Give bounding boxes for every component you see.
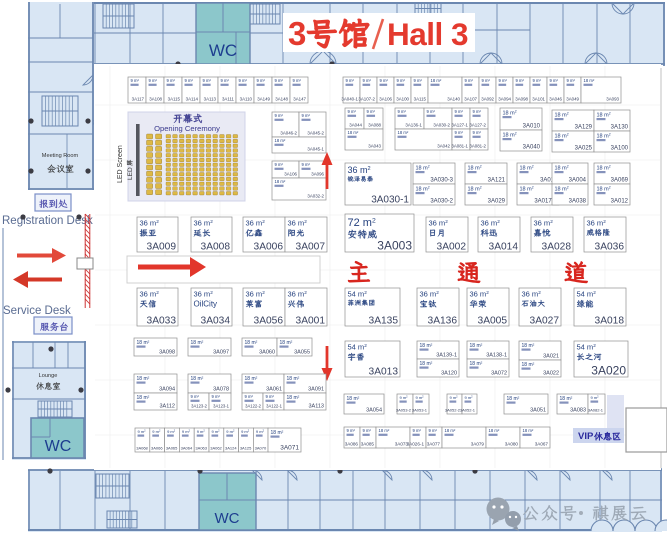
svg-text:3A008: 3A008 (201, 242, 231, 253)
svg-text:3A100: 3A100 (611, 146, 629, 152)
svg-text:3A136: 3A136 (428, 316, 458, 327)
svg-text:18 m2: 18 m2 (555, 112, 569, 119)
svg-text:3A038: 3A038 (569, 199, 587, 205)
svg-text:3A083: 3A083 (570, 408, 586, 414)
svg-text:3A113: 3A113 (204, 97, 217, 102)
svg-text:3A112: 3A112 (160, 404, 176, 410)
svg-text:3A082-1: 3A082-1 (588, 408, 604, 413)
svg-text:3A003: 3A003 (377, 239, 412, 253)
svg-text:3A028: 3A028 (542, 242, 572, 253)
svg-text:3A078: 3A078 (213, 387, 229, 393)
svg-text:3A071: 3A071 (280, 445, 299, 452)
svg-text:3A060: 3A060 (259, 350, 275, 356)
svg-text:3A149: 3A149 (257, 97, 270, 102)
svg-text:3A113: 3A113 (309, 404, 325, 410)
svg-text:3A081-2: 3A081-2 (469, 144, 486, 149)
svg-text:3A098: 3A098 (159, 350, 175, 356)
svg-text:3A098: 3A098 (515, 97, 528, 102)
svg-text:3A081-1: 3A081-1 (451, 144, 468, 149)
svg-text:3A032-2: 3A032-2 (307, 194, 324, 199)
svg-text:18 m2: 18 m2 (503, 110, 517, 117)
svg-text:3A040: 3A040 (523, 145, 541, 151)
svg-text:3A043: 3A043 (368, 144, 381, 149)
svg-text:3A033: 3A033 (147, 316, 177, 327)
svg-text:3A088: 3A088 (368, 123, 381, 128)
svg-text:3A053-1: 3A053-1 (412, 408, 428, 413)
svg-text:3A018: 3A018 (595, 316, 625, 327)
svg-text:3A106: 3A106 (284, 172, 297, 177)
svg-text:3A002: 3A002 (437, 242, 467, 253)
svg-text:3A147: 3A147 (293, 97, 306, 102)
svg-text:3A110: 3A110 (240, 97, 253, 102)
svg-text:18 m2: 18 m2 (597, 133, 611, 140)
svg-text:3A030-2: 3A030-2 (430, 199, 453, 205)
svg-text:3A080: 3A080 (505, 442, 519, 447)
svg-text:3A063: 3A063 (195, 446, 207, 451)
svg-text:3A101: 3A101 (532, 97, 545, 102)
svg-text:3A021: 3A021 (543, 354, 559, 360)
svg-text:3A124: 3A124 (225, 446, 237, 451)
svg-text:3A125: 3A125 (240, 446, 252, 451)
svg-text:18 m2: 18 m2 (555, 133, 569, 140)
svg-text:18 m2: 18 m2 (503, 132, 517, 139)
svg-text:3A014: 3A014 (489, 242, 519, 253)
svg-text:3A052-1: 3A052-1 (460, 408, 476, 413)
svg-text:3A072: 3A072 (491, 371, 507, 377)
svg-text:3A108: 3A108 (149, 97, 162, 102)
svg-text:3A034: 3A034 (201, 316, 231, 327)
svg-text:3A136-1: 3A136-1 (405, 123, 422, 128)
svg-text:3A054: 3A054 (366, 408, 382, 414)
svg-text:3A004: 3A004 (569, 178, 587, 184)
svg-text:3: 3 (288, 15, 306, 52)
svg-text:3A067: 3A067 (535, 442, 549, 447)
svg-text:3A045-2: 3A045-2 (307, 131, 324, 136)
svg-text:3A053-2: 3A053-2 (396, 408, 412, 413)
svg-text:18 m2: 18 m2 (416, 165, 430, 172)
svg-text:Hall 3: Hall 3 (387, 16, 468, 52)
svg-text:3A046: 3A046 (549, 97, 562, 102)
svg-text:3A064: 3A064 (181, 446, 193, 451)
svg-text:72 m2: 72 m2 (348, 217, 376, 229)
svg-text:3A013: 3A013 (369, 367, 399, 378)
svg-text:3A006: 3A006 (254, 242, 284, 253)
svg-text:3A029: 3A029 (488, 199, 506, 205)
svg-text:3A005: 3A005 (478, 316, 508, 327)
svg-text:3A122-1: 3A122-1 (266, 404, 283, 409)
svg-text:3A130: 3A130 (611, 125, 629, 131)
svg-text:LED: LED (127, 167, 134, 180)
svg-text:3A096: 3A096 (311, 172, 324, 177)
svg-text:OilCity: OilCity (194, 300, 218, 309)
svg-text:3A121: 3A121 (488, 178, 506, 184)
svg-text:3A100: 3A100 (396, 97, 409, 102)
svg-text:18 m2: 18 m2 (555, 186, 569, 193)
svg-text:3A107-2: 3A107-2 (358, 97, 375, 102)
svg-text:18 m2: 18 m2 (555, 165, 569, 172)
svg-text:18 m2: 18 m2 (520, 186, 534, 193)
svg-text:36 m2: 36 m2 (348, 165, 371, 175)
svg-text:3A114: 3A114 (186, 97, 199, 102)
svg-text:3A120: 3A120 (441, 371, 457, 377)
svg-text:3A127-2: 3A127-2 (469, 123, 486, 128)
svg-text:3A046-2: 3A046-2 (280, 131, 297, 136)
svg-text:3A135: 3A135 (369, 316, 399, 327)
svg-text:3A111: 3A111 (222, 97, 235, 102)
svg-text:3A040-1: 3A040-1 (341, 97, 358, 102)
svg-text:3A065: 3A065 (166, 446, 178, 451)
svg-text:3A123-1: 3A123-1 (213, 404, 230, 409)
svg-text:18 m2: 18 m2 (468, 165, 482, 172)
svg-text:3A097: 3A097 (213, 350, 229, 356)
svg-text:3A138-1: 3A138-1 (486, 353, 507, 359)
svg-text:3A044: 3A044 (349, 123, 362, 128)
svg-text:3A086: 3A086 (345, 442, 359, 447)
svg-text:18 m2: 18 m2 (597, 186, 611, 193)
svg-text:18 m2: 18 m2 (468, 186, 482, 193)
svg-text:3A020: 3A020 (591, 364, 626, 378)
svg-text:3A085: 3A085 (361, 442, 375, 447)
svg-text:Opening Ceremony: Opening Ceremony (154, 124, 220, 133)
svg-text:18 m2: 18 m2 (597, 112, 611, 119)
svg-text:3A139-1: 3A139-1 (436, 353, 457, 359)
svg-text:3A117: 3A117 (132, 97, 145, 102)
svg-text:3A129: 3A129 (575, 125, 593, 131)
svg-text:18 m2: 18 m2 (597, 165, 611, 172)
svg-text:WC: WC (209, 41, 237, 60)
svg-text:3A030-1: 3A030-1 (371, 195, 409, 206)
svg-text:WC: WC (45, 438, 72, 455)
svg-text:3A077: 3A077 (427, 442, 441, 447)
svg-text:VIP: VIP (578, 431, 594, 442)
svg-text:3A022: 3A022 (543, 371, 559, 377)
svg-text:3A127-1: 3A127-1 (451, 123, 468, 128)
svg-text:3A148: 3A148 (275, 97, 288, 102)
svg-text:3A106: 3A106 (379, 97, 392, 102)
svg-text:3A030-3: 3A030-3 (430, 178, 453, 184)
svg-text:18 m2: 18 m2 (520, 165, 534, 172)
svg-text:LED Screen: LED Screen (117, 145, 124, 183)
svg-text:3A122-2: 3A122-2 (245, 404, 262, 409)
svg-text:3A009: 3A009 (147, 242, 177, 253)
svg-text:3A007: 3A007 (296, 242, 326, 253)
svg-text:3A123-2: 3A123-2 (191, 404, 208, 409)
svg-text:3A069: 3A069 (611, 178, 629, 184)
svg-text:Lounge: Lounge (39, 373, 58, 379)
svg-text:3A092: 3A092 (481, 97, 494, 102)
svg-text:3A115: 3A115 (168, 97, 181, 102)
svg-text:3A115: 3A115 (414, 97, 427, 102)
svg-text:3A052-2: 3A052-2 (445, 408, 461, 413)
svg-text:3A027: 3A027 (530, 316, 560, 327)
svg-text:3A094: 3A094 (498, 97, 511, 102)
svg-text:Service Desk: Service Desk (3, 305, 71, 317)
svg-text:3A079: 3A079 (471, 442, 485, 447)
svg-text:3A061: 3A061 (266, 387, 282, 393)
svg-text:3A010: 3A010 (523, 124, 541, 130)
svg-text:3A051: 3A051 (530, 408, 546, 414)
svg-text:3A012: 3A012 (611, 199, 629, 205)
svg-text:3A066: 3A066 (151, 446, 163, 451)
svg-text:3A091: 3A091 (308, 387, 324, 393)
svg-text:3A070: 3A070 (255, 446, 267, 451)
svg-text:3A056: 3A056 (254, 316, 284, 327)
svg-text:3A055: 3A055 (294, 350, 310, 356)
svg-text:3A036: 3A036 (595, 242, 625, 253)
svg-text:3A068: 3A068 (136, 446, 148, 451)
svg-text:3A062: 3A062 (210, 446, 222, 451)
svg-text:3A042: 3A042 (437, 144, 450, 149)
svg-text:3A045-1: 3A045-1 (307, 147, 324, 152)
svg-text:3A030-2: 3A030-2 (433, 123, 450, 128)
svg-text:3A026-1: 3A026-1 (407, 442, 425, 447)
svg-text:Meeting Room: Meeting Room (42, 153, 79, 159)
svg-text:3A093: 3A093 (606, 97, 619, 102)
svg-text:3A140: 3A140 (447, 97, 460, 102)
svg-text:3A094: 3A094 (159, 387, 175, 393)
svg-text:3A025: 3A025 (575, 146, 593, 152)
svg-text:3A049: 3A049 (566, 97, 579, 102)
svg-text:3A001: 3A001 (296, 316, 326, 327)
svg-text:18 m2: 18 m2 (416, 186, 430, 193)
svg-text:WC: WC (215, 510, 240, 527)
svg-text:3A107: 3A107 (464, 97, 477, 102)
